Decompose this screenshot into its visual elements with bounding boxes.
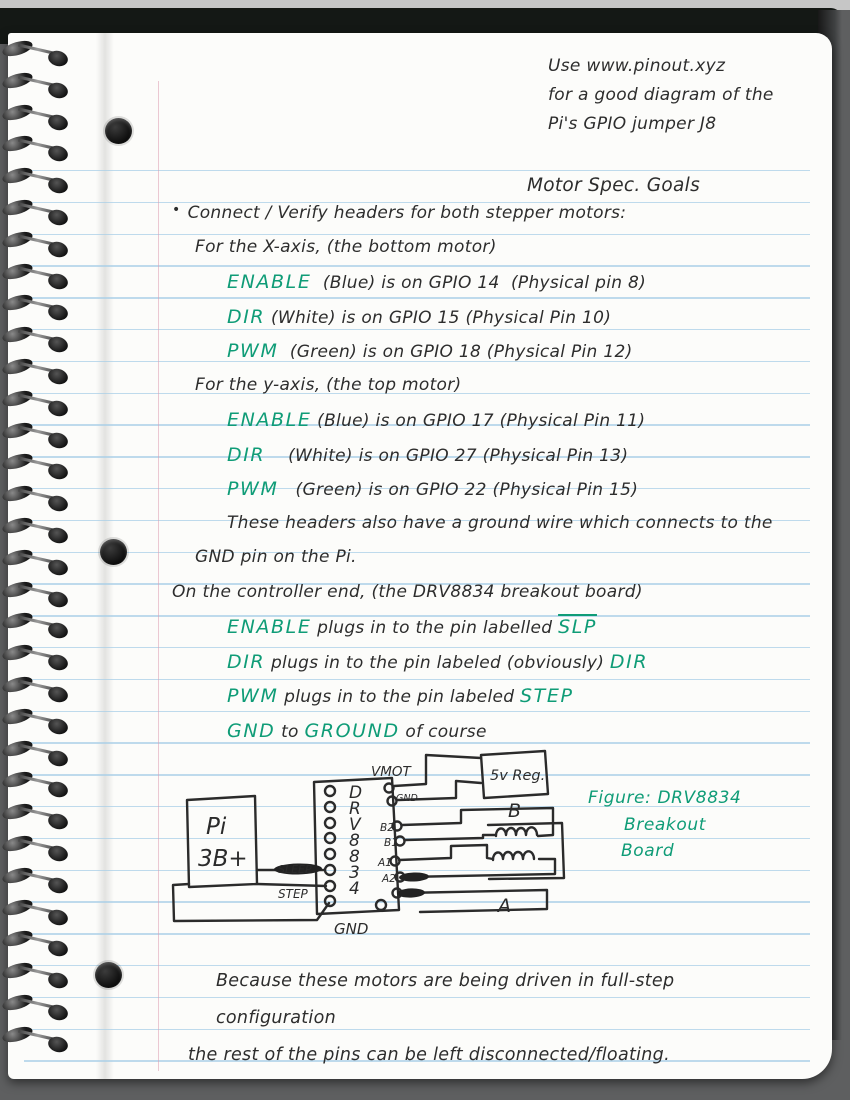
- note-line: For the X-axis, (the bottom motor): [165, 237, 785, 272]
- keyword: ENABLE: [227, 271, 311, 293]
- spiral-coil: [46, 557, 69, 577]
- keyword: ENABLE: [227, 409, 311, 431]
- note-line: On the controller end, (the DRV8834 brea…: [165, 582, 785, 617]
- spiral-coil: [46, 844, 69, 864]
- note-line: DIR (White) is on GPIO 15 (Physical Pin …: [165, 306, 785, 341]
- pin-label-b2: B2: [380, 822, 394, 834]
- spiral-coil: [46, 526, 69, 546]
- pin-label-a2: A2: [381, 873, 396, 885]
- regulator-label: 5v Reg.: [490, 768, 545, 784]
- spiral-coil: [46, 1034, 69, 1054]
- closing-line: Because these motors are being driven in…: [188, 963, 788, 1037]
- closing-line: the rest of the pins can be left disconn…: [188, 1037, 788, 1074]
- note-text: GND pin on the Pi.: [195, 547, 357, 567]
- note-line: ENABLE plugs in to the pin labelled SLP: [165, 616, 785, 651]
- punched-hole: [95, 962, 122, 988]
- pin-label-a1: A1: [377, 857, 392, 869]
- keyword: PWM: [227, 478, 278, 500]
- coil-a-label: A: [496, 895, 511, 917]
- note-text: plugs in to the pin labeled (obviously): [265, 653, 610, 673]
- keyword: STEP: [520, 685, 574, 707]
- pin-label-vmot: VMOT: [371, 764, 413, 780]
- b2-wire: [402, 808, 553, 836]
- a1-wire: [399, 845, 493, 860]
- a2-wire: [406, 859, 555, 877]
- spiral-coil: [46, 494, 69, 514]
- keyword: DIR: [227, 444, 265, 466]
- note-text: (Blue) is on GPIO 17 (Physical Pin 11): [311, 411, 645, 431]
- punched-hole: [105, 118, 132, 144]
- keyword: DIR: [227, 651, 265, 673]
- pi-label-2: 3B+: [198, 846, 248, 872]
- note-line: DIR plugs in to the pin labeled (obvious…: [165, 651, 785, 686]
- note-text: Connect / Verify headers for both steppe…: [188, 203, 627, 223]
- figure-caption-line: Breakout: [624, 815, 706, 835]
- spiral-coil: [46, 144, 69, 164]
- pi-box: [187, 796, 257, 887]
- spiral-coil: [46, 367, 69, 387]
- keyword: ENABLE: [227, 616, 311, 638]
- wiring-diagram: Pi 3B+ D R V 8 8 3 4 VMOT GND B2 B1 A1 A…: [158, 738, 823, 960]
- figure-caption-line: Figure: DRV8834: [588, 788, 741, 808]
- note-text: For the X-axis, (the bottom motor): [195, 237, 497, 257]
- note-text: (Blue) is on GPIO 14 (Physical pin 8): [311, 273, 646, 293]
- notes-body: •Connect / Verify headers for both stepp…: [165, 202, 785, 754]
- ruled-line: [24, 170, 810, 171]
- note-text: (Green) is on GPIO 18 (Physical Pin 12): [278, 342, 632, 362]
- coil-b: [496, 827, 537, 836]
- keyword: SLP: [558, 616, 597, 638]
- coil-a: [493, 851, 534, 860]
- spiral-coil: [46, 971, 69, 991]
- pin-label-b1: B1: [384, 837, 398, 849]
- coil-b-label: B: [508, 800, 521, 822]
- spiral-coil: [46, 780, 69, 800]
- b1-wire: [405, 835, 495, 840]
- spiral-coil: [46, 875, 69, 895]
- spiral-coil: [46, 716, 69, 736]
- note-text: (White) is on GPIO 15 (Physical Pin 10): [265, 308, 611, 328]
- spiral-coil: [46, 208, 69, 228]
- spiral-coil: [46, 939, 69, 959]
- note-text: (Green) is on GPIO 22 (Physical Pin 15): [278, 480, 638, 500]
- corner-note-line: for a good diagram of the: [548, 81, 808, 110]
- note-line: These headers also have a ground wire wh…: [165, 513, 785, 548]
- note-text: plugs in to the pin labeled: [278, 687, 520, 707]
- corner-note: Use www.pinout.xyzfor a good diagram of …: [548, 52, 808, 139]
- corner-note-line: Use www.pinout.xyz: [548, 52, 808, 81]
- bullet: •: [172, 202, 181, 218]
- note-line: GND pin on the Pi.: [165, 547, 785, 582]
- chip-letter: 4: [349, 879, 360, 899]
- pi-label: Pi: [206, 814, 227, 840]
- corner-note-line: Pi's GPIO jumper J8: [548, 110, 808, 139]
- spiral-coil: [46, 80, 69, 100]
- note-line: •Connect / Verify headers for both stepp…: [165, 202, 785, 237]
- wire-label-step: STEP: [278, 887, 309, 901]
- keyword: DIR: [610, 651, 648, 673]
- note-line: PWM (Green) is on GPIO 22 (Physical Pin …: [165, 478, 785, 513]
- spiral-coil: [46, 1003, 69, 1023]
- keyword: PWM: [227, 685, 278, 707]
- note-line: PWM (Green) is on GPIO 18 (Physical Pin …: [165, 340, 785, 375]
- wire-label-sleep: SLEEP: [278, 863, 312, 876]
- spiral-coil: [46, 398, 69, 418]
- keyword: DIR: [227, 306, 265, 328]
- spiral-coil: [46, 685, 69, 705]
- spiral-coil: [46, 335, 69, 355]
- note-text: For the y-axis, (the top motor): [195, 375, 461, 395]
- spiral-coil: [46, 49, 69, 69]
- spiral-coil: [46, 621, 69, 641]
- spiral-coil: [46, 303, 69, 323]
- note-text: (White) is on GPIO 27 (Physical Pin 13): [265, 446, 628, 466]
- spiral-coil: [46, 176, 69, 196]
- note-text: plugs in to the pin labelled: [311, 618, 558, 638]
- note-line: PWM plugs in to the pin labeled STEP: [165, 685, 785, 720]
- note-text: On the controller end, (the DRV8834 brea…: [172, 582, 643, 602]
- wire-label-gnd: GND: [334, 920, 368, 938]
- punched-hole: [100, 539, 127, 565]
- note-line: DIR (White) is on GPIO 27 (Physical Pin …: [165, 444, 785, 479]
- page-title: Motor Spec. Goals: [527, 175, 700, 196]
- spiral-coil: [46, 462, 69, 482]
- pin-label-gnd: GND: [396, 793, 418, 804]
- notebook-page: Use www.pinout.xyzfor a good diagram of …: [8, 33, 832, 1079]
- note-text: These headers also have a ground wire wh…: [227, 513, 773, 533]
- spiral-coil: [46, 653, 69, 673]
- note-line: For the y-axis, (the top motor): [165, 375, 785, 410]
- spiral-coil: [46, 239, 69, 259]
- note-line: ENABLE (Blue) is on GPIO 17 (Physical Pi…: [165, 409, 785, 444]
- figure-caption-line: Board: [621, 841, 674, 861]
- spiral-coil: [46, 812, 69, 832]
- closing-paragraph: Because these motors are being driven in…: [188, 963, 788, 1074]
- keyword: PWM: [227, 340, 278, 362]
- note-line: ENABLE (Blue) is on GPIO 14 (Physical pi…: [165, 271, 785, 306]
